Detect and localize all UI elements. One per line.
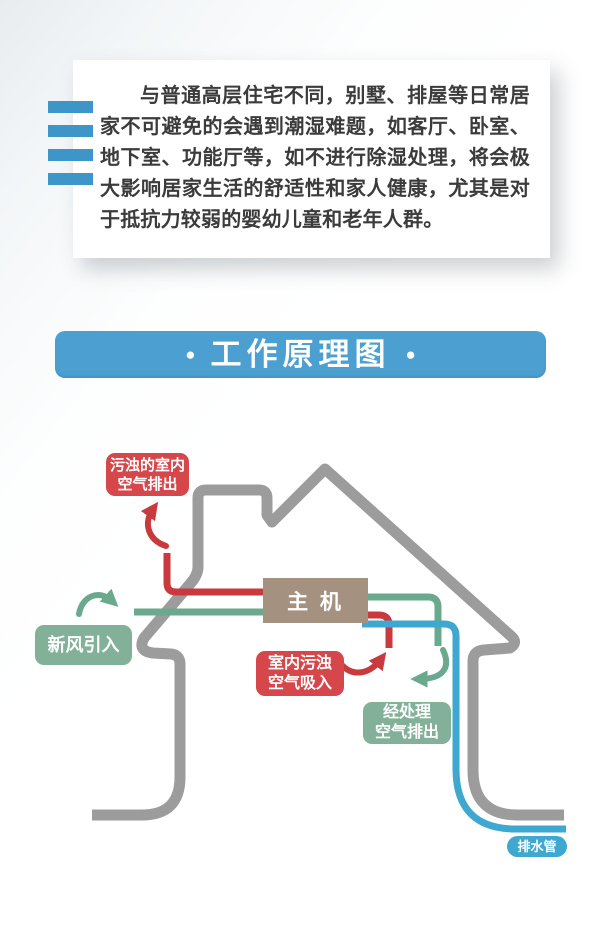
working-principle-diagram — [0, 0, 600, 930]
dirty-air-suction-arrow-icon — [341, 659, 381, 673]
house-outline — [92, 469, 564, 815]
dehumidifier-infographic: 与普通高层住宅不同，别墅、排屋等日常居家不可避免的会遇到潮湿难题，如客厅、卧室、… — [0, 0, 600, 930]
label-indoor-dirty-intake: 室内污浊 空气吸入 — [256, 651, 344, 696]
label-treated-air-exhaust: 经处理 空气排出 — [363, 702, 451, 744]
main-unit-box: 主 机 — [263, 578, 368, 623]
label-drain-pipe: 排水管 — [507, 836, 567, 857]
treated-air-out-arrow-icon — [419, 650, 446, 679]
fresh-air-intake-arrow-icon — [79, 595, 112, 614]
dirty-air-exhaust-arrow-icon — [148, 509, 166, 546]
label-dirty-air-exhaust: 污浊的室内 空气排出 — [106, 453, 189, 496]
label-fresh-air-intake: 新风引入 — [35, 625, 132, 665]
dirty-air-pipe-right — [366, 615, 389, 648]
